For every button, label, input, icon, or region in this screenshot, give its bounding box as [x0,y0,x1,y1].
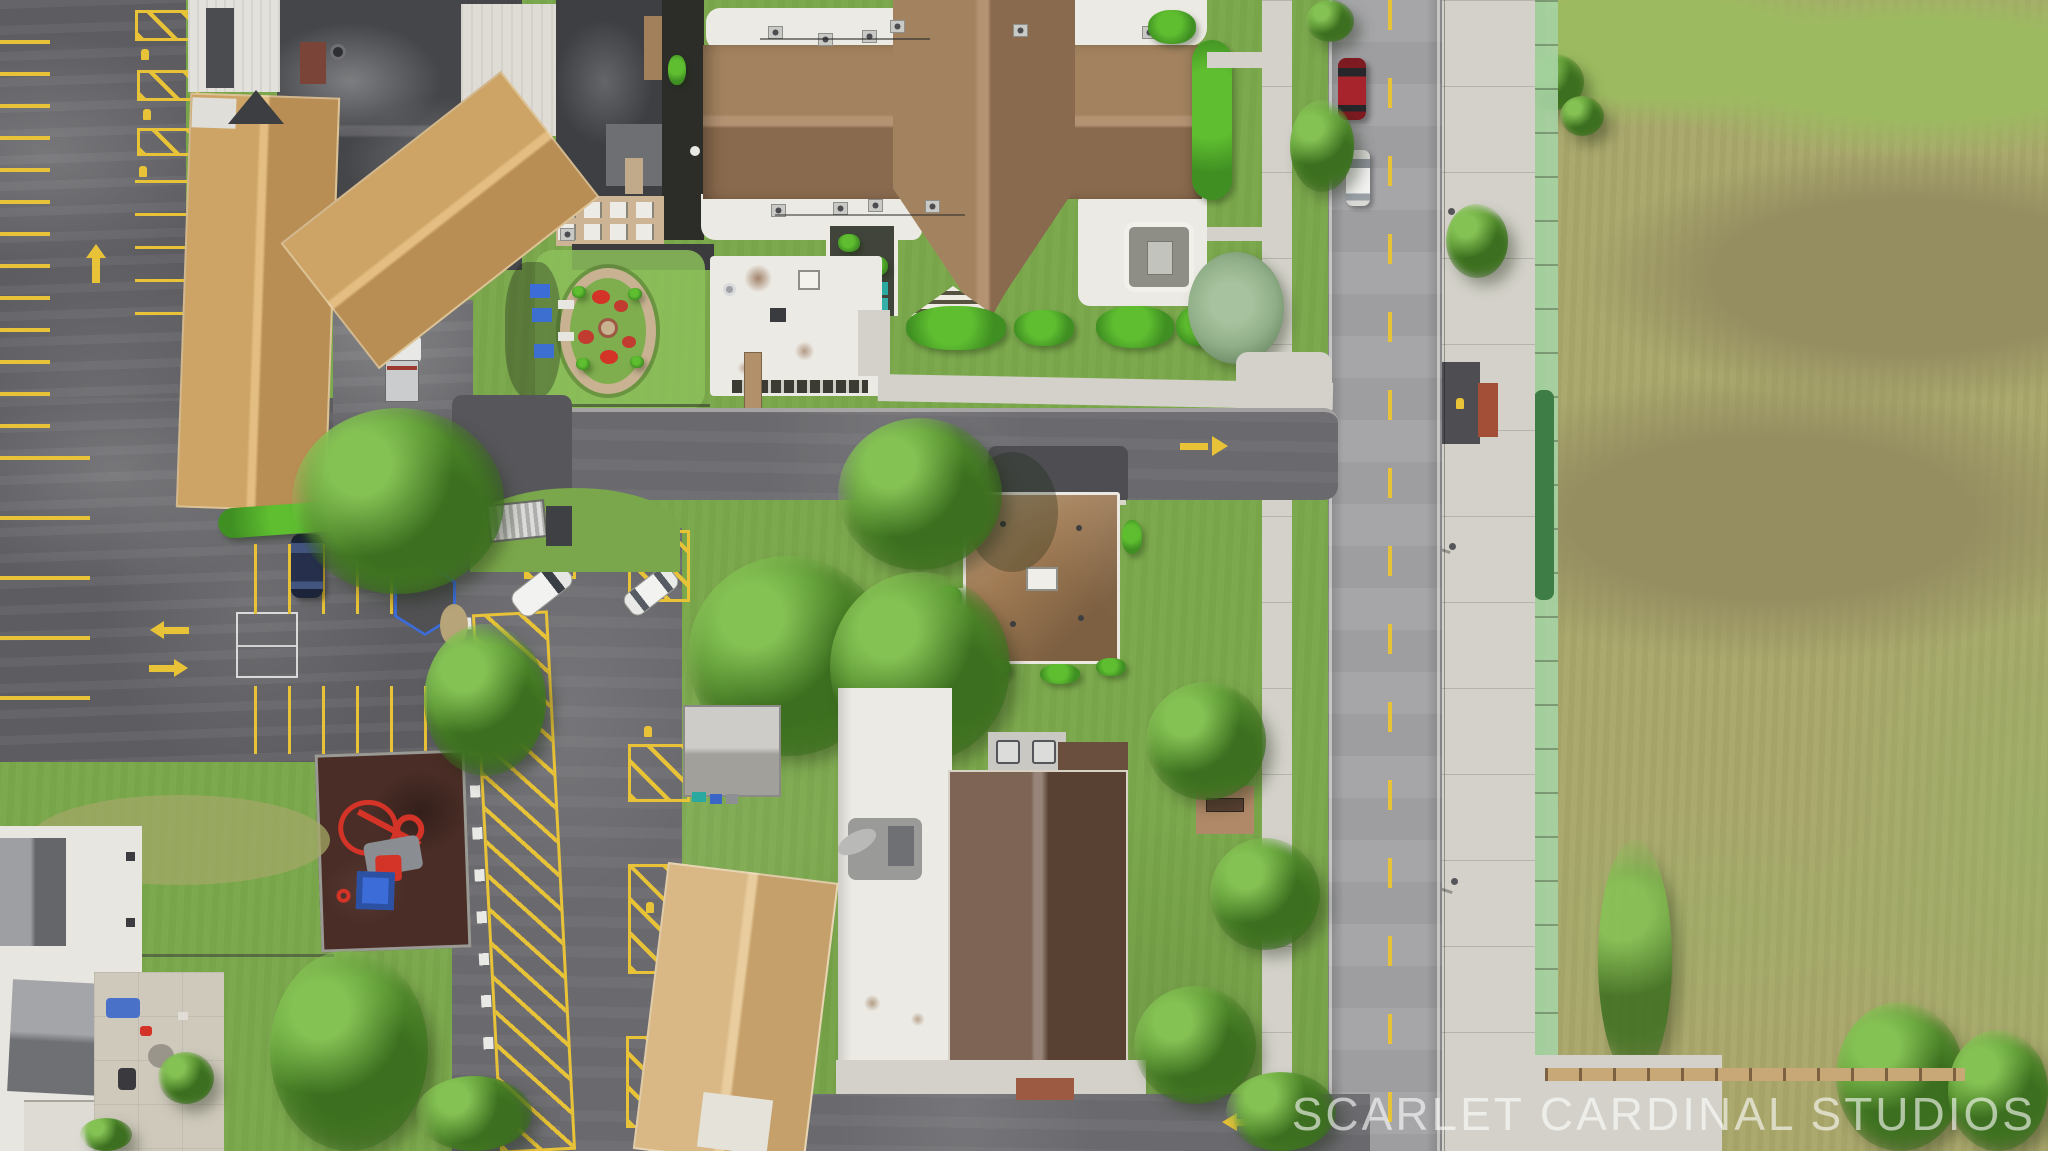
house-hedge-south [1040,664,1080,684]
satellite-dish [690,146,700,156]
lane-arrow-up [84,244,108,284]
church-courtyard-se [1124,222,1194,292]
patio-grill [118,1068,136,1090]
flower-bed-red [614,300,628,312]
house-window [126,918,135,927]
roof-chimney [330,44,346,60]
patio-bush [158,1052,214,1104]
chimney-tan [625,158,643,194]
pavement-handicap-mark [1456,398,1464,409]
lane-arrow-right [148,658,188,678]
picnic-table-blue [532,308,552,322]
bottom-tree-cluster [416,1076,532,1151]
garden-center [598,318,618,338]
play-ring-red [336,889,350,903]
roof-skylight [798,270,820,290]
watermark-text: SCARLET CARDINAL STUDIOS [1292,1087,2036,1141]
stall-lines-lower-left [0,456,90,728]
utility-pole [1451,878,1458,885]
front-walk-stub [1207,52,1263,68]
brick-pad [1016,1078,1074,1100]
hvac-pad [988,732,1066,772]
house-bush [1122,520,1142,554]
rooftop-door-dark [206,8,234,88]
yard-tree-small [80,1118,132,1151]
patio-blue-tarp [106,998,140,1018]
church-roof-ns-arm [893,0,1075,314]
unit-cabinet [888,826,914,866]
rooftop-pipe [775,214,965,216]
aerial-photo: SCARLET CARDINAL STUDIOS [0,0,2048,1151]
play-canopy-blue [356,871,395,910]
lane-arrow-left [150,620,190,640]
house-roof-section [0,838,66,946]
garden-bench-white [558,300,574,309]
flower-bed-red [592,290,610,304]
white-ribbed-roof-small [188,0,280,92]
field-edge-trees [1598,840,1672,1080]
building-shadow-strip [505,262,561,398]
patio-red-item [140,1026,152,1036]
fence-line [560,404,710,407]
brick-parapet [300,42,326,84]
boiler-chimney [744,352,762,414]
east-sidewalk [1442,0,1535,1151]
garden-bench-white [558,332,574,341]
white-annex-roof [710,256,882,396]
picnic-table-blue [534,344,554,358]
east-yard-tree [1210,838,1320,950]
lane-arrow-right-drive [1180,436,1228,456]
handicap-symbol [644,726,652,737]
painted-white-box [236,612,298,678]
stall-lines-far-left [0,40,50,440]
house-hedge-south [1096,658,1126,676]
playground-surface [315,749,472,952]
flower-bed-red [622,336,636,348]
church-hedge-ne [1148,10,1196,44]
no-park-hatch [137,128,195,156]
roof-vent [1010,621,1016,627]
cottage-white-gable [697,1092,773,1151]
metal-chimney [723,283,736,296]
west-sidewalk [1262,0,1292,1151]
utility-pole [1448,208,1455,215]
east-yard-tree [1146,682,1266,800]
flower-bed-red [600,350,618,364]
park-bench [1206,798,1244,812]
front-walk-stub [1207,227,1263,241]
house-window [126,852,135,861]
rooftop-hvac [890,20,905,33]
overhead-wire [1444,0,1445,1151]
church-hedge [1096,306,1174,348]
circular-garden [560,268,656,394]
roof-vent [1076,525,1082,531]
utility-pole [1449,543,1456,550]
rooftop-hvac [560,228,575,241]
road-center-dashes [1388,0,1392,1151]
white-flat-building [838,688,952,1092]
handicap-symbol [141,49,149,60]
bin-blue [710,794,722,804]
picnic-table-blue [530,284,550,298]
east-walk-tree [1446,204,1508,278]
rooftop-hvac [868,199,883,212]
spruce-tree [1188,252,1284,364]
church-side-walk [858,310,890,376]
brown-gable-building [948,770,1128,1088]
rooftop-unit-large [848,818,922,880]
hatch-box-east [628,744,690,802]
roof-vent [1078,615,1084,621]
flower-bed-red [578,330,594,344]
bus-pad-mat [1478,383,1498,437]
trailer-dark [546,506,572,546]
roof-cupola [1026,567,1058,591]
field-top-bush [1560,96,1604,136]
handicap-symbol [143,109,151,120]
roof-hatch [770,308,786,322]
rooftop-hvac [925,200,940,213]
lot-entrance-trees [292,408,504,594]
alley-gap [662,0,704,240]
road-curb-east [1437,0,1440,1151]
silt-fence-dark-section [1534,390,1554,600]
bin-teal [692,792,706,802]
church-wing-nw [706,8,918,50]
patio-item [178,1012,188,1020]
rooftop-hvac [1013,24,1028,37]
playground-side-trees [424,624,546,776]
garden-shed-roof [683,705,781,797]
rooftop-pipe [760,38,930,40]
bin-gray [726,794,738,804]
church-hedge [1014,310,1074,346]
brick-chimney [644,16,664,80]
rooftop-hvac [862,30,877,43]
handicap-symbol [646,902,654,913]
bottom-tree-cluster [270,950,428,1151]
handicap-symbol [139,166,147,177]
wood-fence-rail [1545,1068,1965,1081]
yard-tree [838,418,1002,570]
parkway-tree [1306,0,1354,42]
church-hedge [906,306,1006,350]
south-walkway [836,1060,1146,1094]
parkway-tree [1290,100,1354,192]
gable-shadow-wedge [228,90,284,124]
